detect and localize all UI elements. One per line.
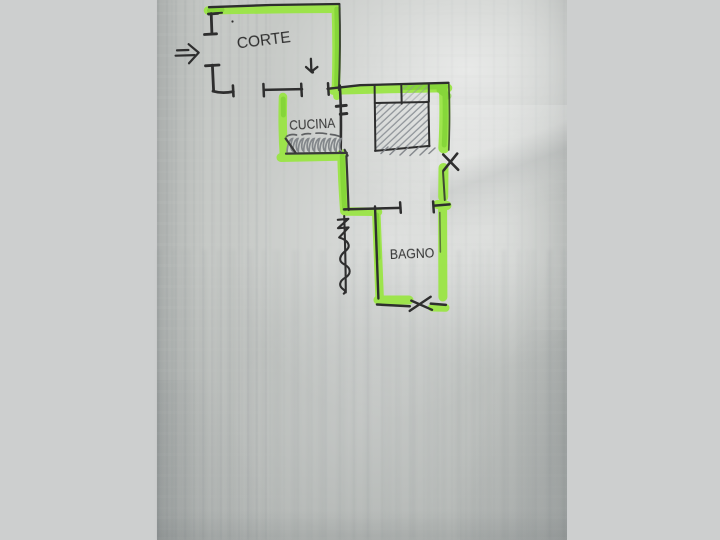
svg-text:CUCINA: CUCINA xyxy=(289,115,336,133)
svg-text:CORTE: CORTE xyxy=(236,29,292,52)
svg-text:BAGNO: BAGNO xyxy=(390,245,435,262)
